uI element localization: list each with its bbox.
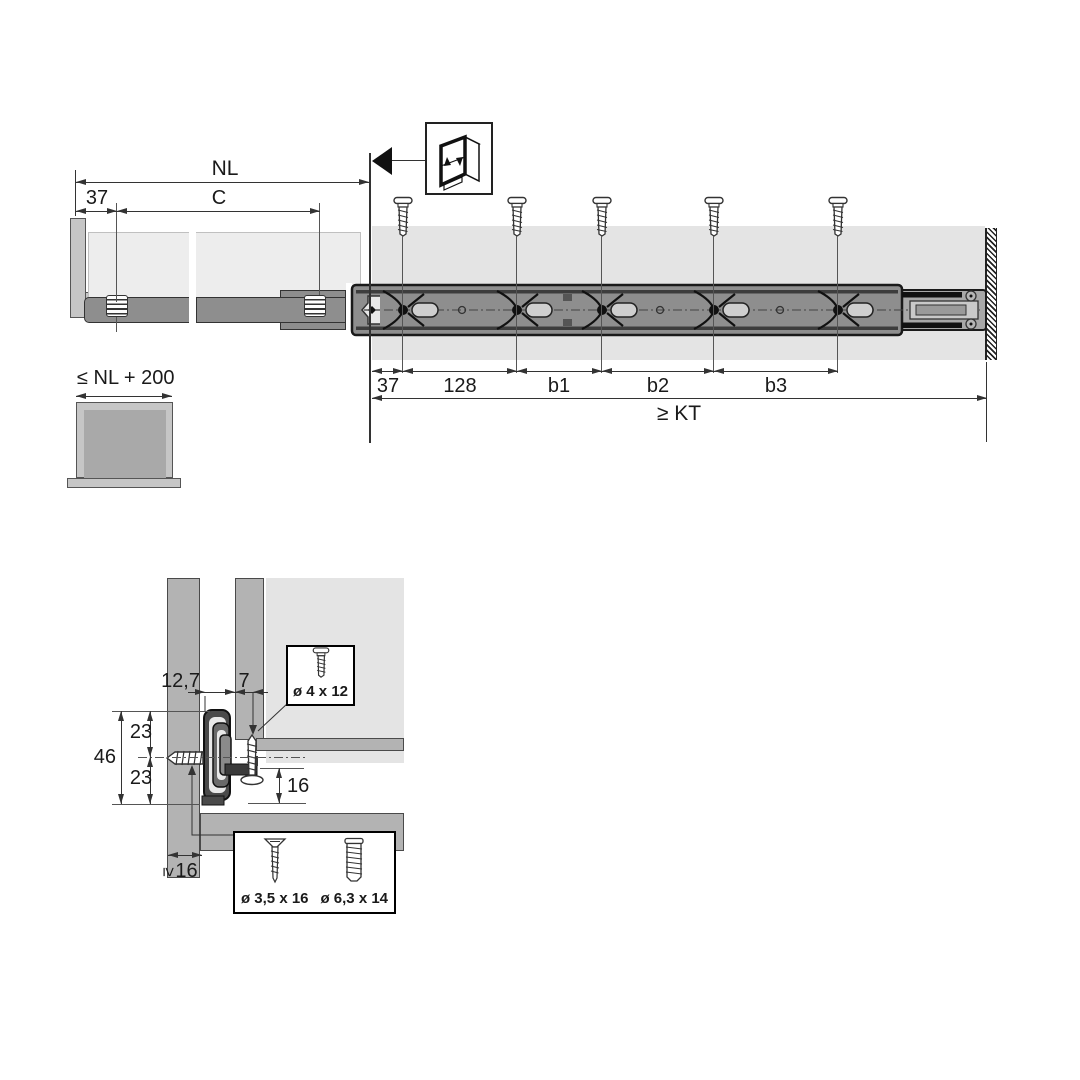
mounting-screw-icon <box>825 196 851 238</box>
ext-line <box>837 236 838 373</box>
drawer-slide-installation-diagram: NL 37 C 37 128 b1 b2 b3 ≥ KT ≤ NL + 200 <box>0 0 1080 1080</box>
cabinet-icon <box>427 124 491 193</box>
dim-line-kt <box>372 398 987 399</box>
dim-label-b1: b1 <box>548 376 570 396</box>
dim-line-46 <box>121 711 122 804</box>
ext-line <box>260 768 304 769</box>
dim-label-seg37: 37 <box>377 376 399 396</box>
max-drawer-length-label: ≤ NL + 200 <box>77 368 175 388</box>
ge-symbol: ≥ <box>159 867 179 876</box>
ext-line <box>601 236 602 373</box>
drawer-box-inner <box>84 410 166 478</box>
dim-label-23-bottom: 23 <box>130 768 152 788</box>
dim-label-kt: ≥ KT <box>657 403 701 424</box>
screw-spec-label-63x14: ø 6,3 x 14 <box>320 890 388 907</box>
screw-icon-4x12 <box>310 647 332 682</box>
dim-label-c: C <box>212 188 226 208</box>
rail-clip-front <box>106 295 128 317</box>
cabinet-rail-drawing <box>350 282 990 338</box>
drawer-box-base <box>67 478 181 488</box>
screw-spec-box-4x12: ø 4 x 12 <box>286 645 355 706</box>
ext-line <box>986 362 987 442</box>
ext-line <box>319 203 320 295</box>
break-gap-1 <box>189 229 196 347</box>
screw-spec-label-4x12: ø 4 x 12 <box>293 683 348 700</box>
ext-line <box>116 203 117 302</box>
front-plane-line <box>369 153 371 443</box>
clip-center-dotted <box>116 317 117 332</box>
dim-label-b3: b3 <box>765 376 787 396</box>
drawer-rail-left <box>84 297 190 323</box>
dim-label-23-top: 23 <box>130 722 152 742</box>
front-direction-arrow <box>372 147 392 175</box>
dim-label-127: 12,7 <box>160 671 200 691</box>
ext-line <box>713 236 714 373</box>
rail-clip-rear <box>304 295 326 317</box>
mounting-screw-icon <box>589 196 615 238</box>
ext-line <box>516 236 517 373</box>
dim-label-46: 46 <box>88 747 116 767</box>
cabinet-icon-box <box>425 122 493 195</box>
dim-label-seg128: 128 <box>443 376 476 396</box>
screw-icon-35x16 <box>262 837 288 887</box>
ext-line <box>112 711 210 712</box>
dim-label-nl: NL <box>212 158 239 179</box>
screw-axis-centerline <box>138 757 308 758</box>
screw-spec-label-35x16: ø 3,5 x 16 <box>241 890 309 907</box>
mounting-screw-icon <box>504 196 530 238</box>
screw-icon-63x14 <box>342 837 366 887</box>
ext-line <box>402 236 403 373</box>
dim-label-16: 16 <box>287 776 309 796</box>
dim-label-37: 37 <box>86 188 108 208</box>
dim-label-b2: b2 <box>647 376 669 396</box>
dim-line-nl <box>76 182 370 183</box>
icon-leader-line <box>392 160 425 161</box>
mounting-screw-icon <box>701 196 727 238</box>
ext-line <box>248 803 306 804</box>
dim-line-nl200 <box>76 396 172 397</box>
dim-label-7: 7 <box>238 671 249 691</box>
screw-spec-box-bottom: ø 3,5 x 16 ø 6,3 x 14 <box>233 831 396 914</box>
ext-line <box>112 804 200 805</box>
mounting-screw-icon <box>390 196 416 238</box>
dim-label-ge16: ≥ 16 <box>164 860 198 883</box>
